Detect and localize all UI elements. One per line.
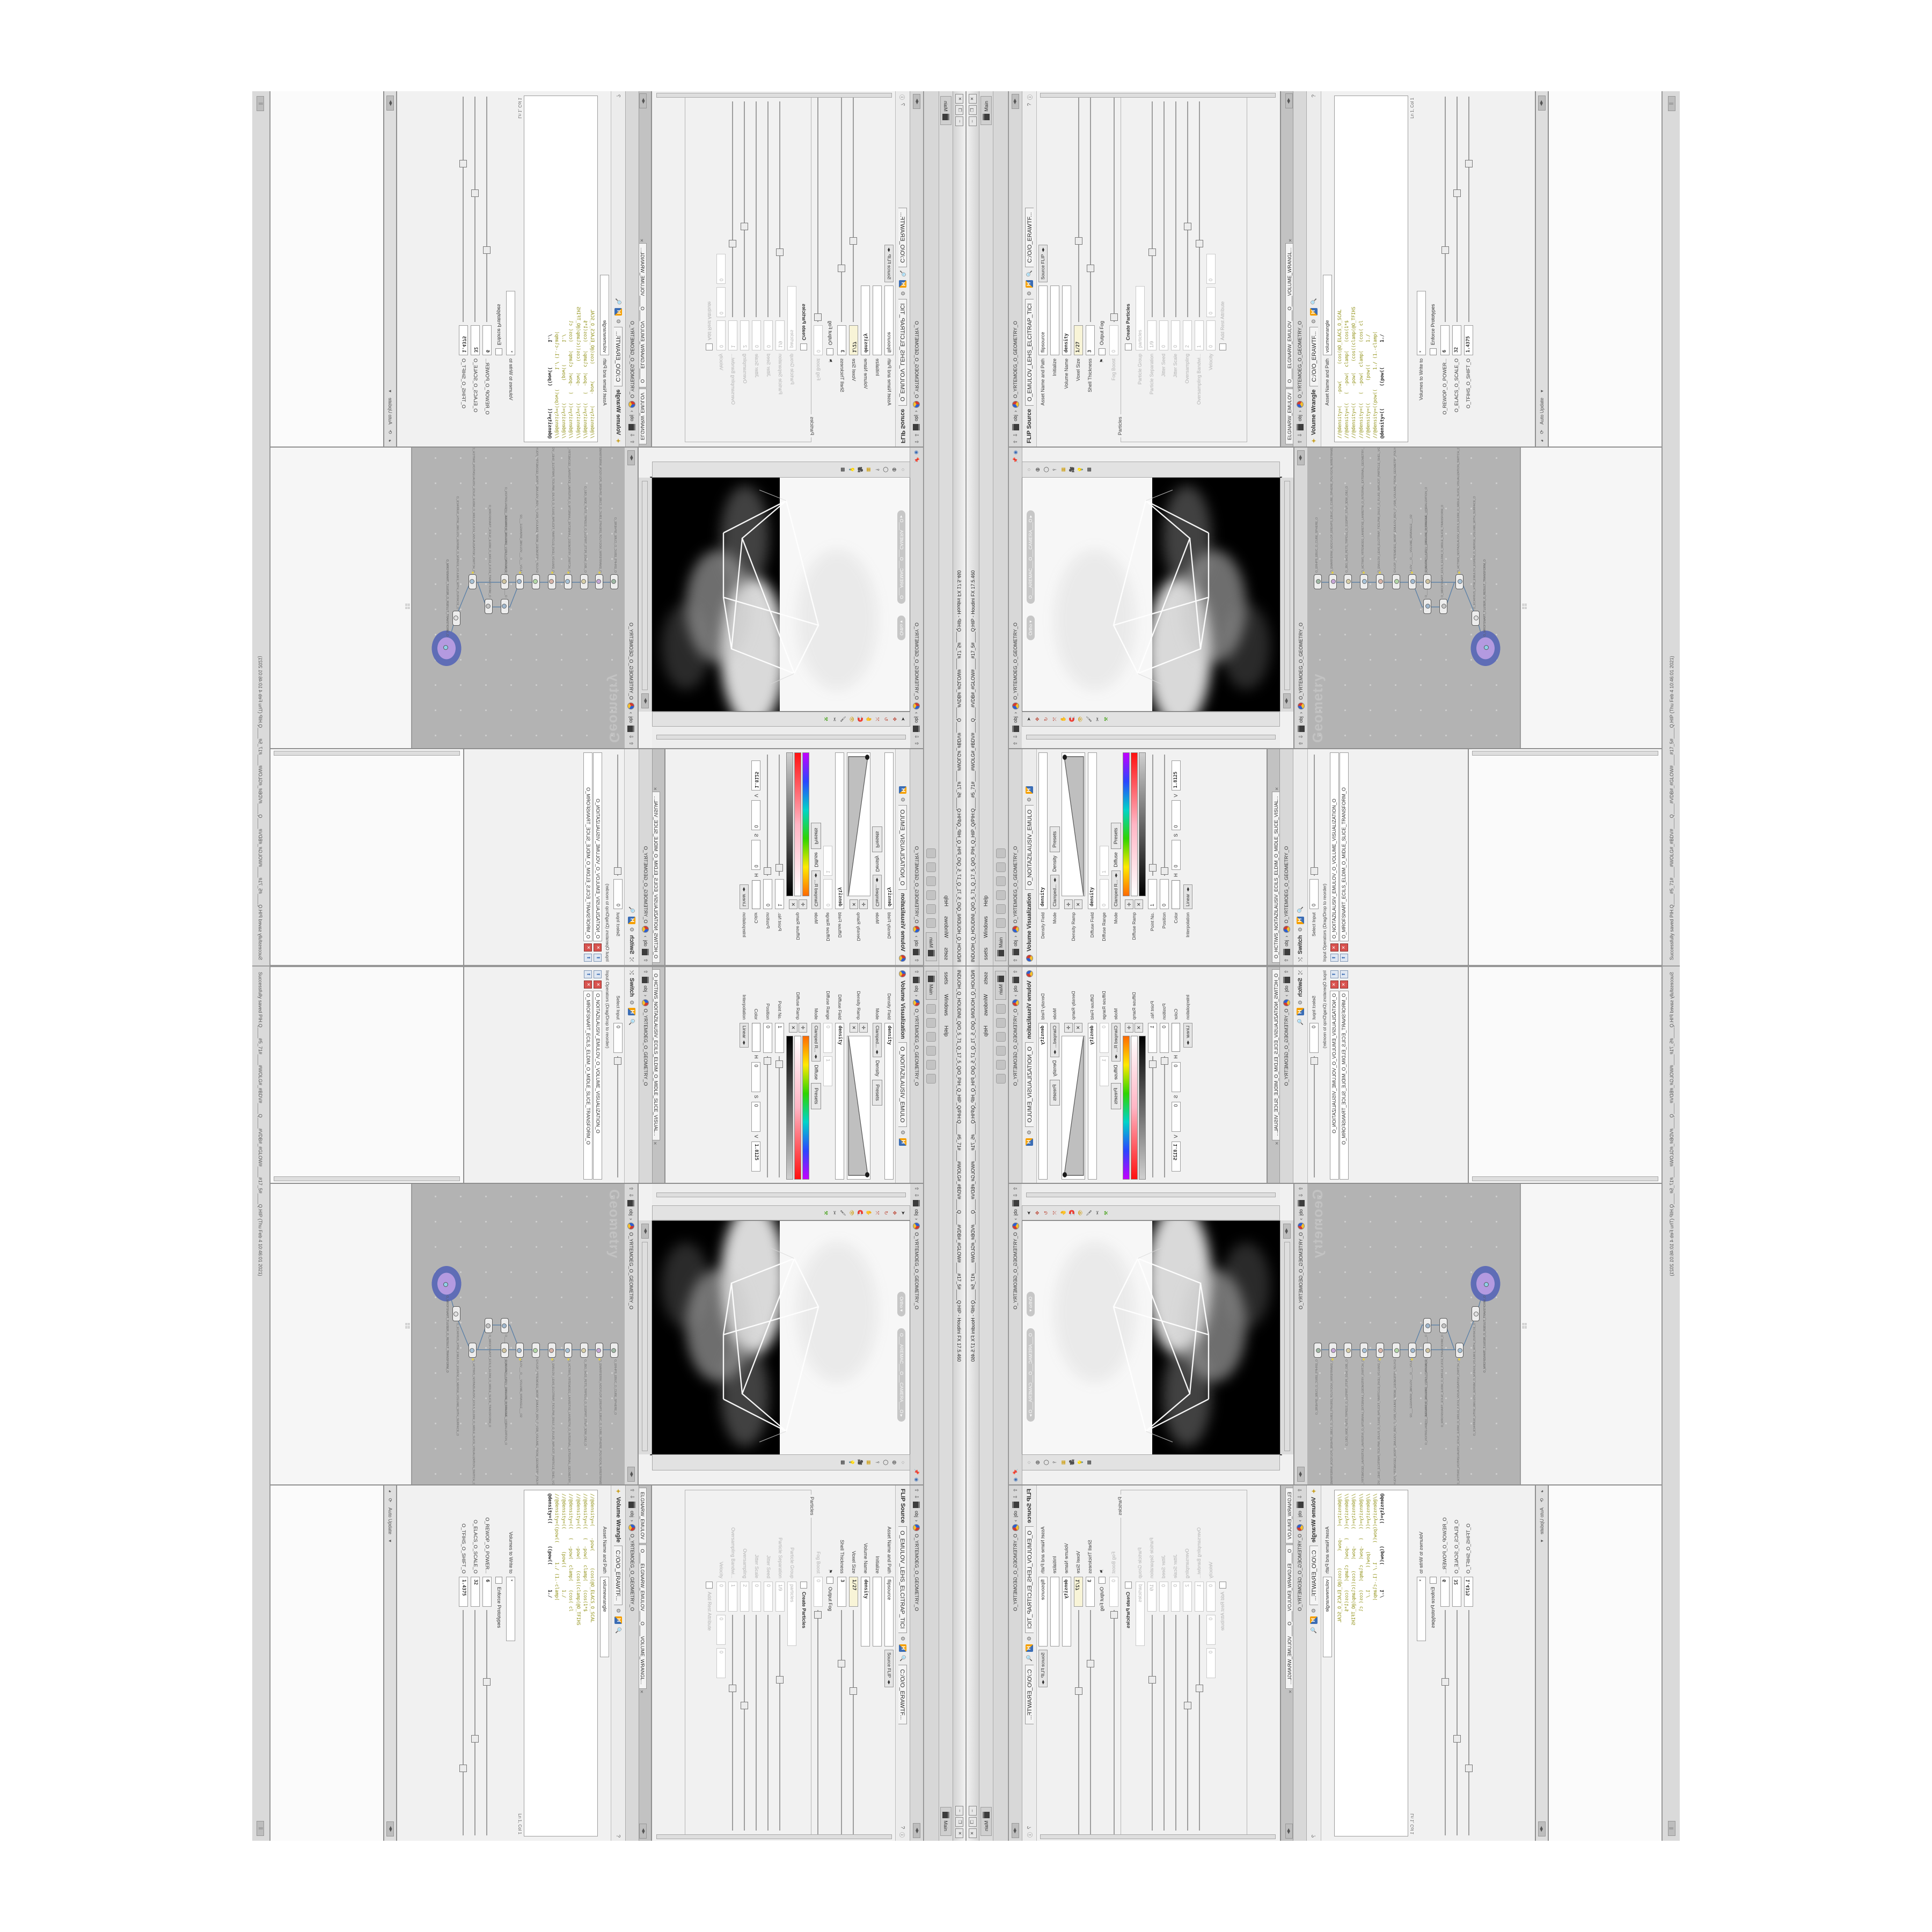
diffuse-presets-button[interactable]: Presets [811, 1083, 822, 1109]
pane-scroll-tab[interactable]: ◀▶ [1538, 1821, 1546, 1836]
menu-windows[interactable]: Windows [983, 916, 989, 938]
display-lights-icon[interactable]: 💡 [849, 1459, 854, 1465]
density-presets-button[interactable]: Presets [1050, 1080, 1060, 1106]
translate-tool-icon[interactable]: ✥ [892, 1211, 897, 1215]
scale-input[interactable]: 32 [1452, 1577, 1461, 1607]
shelf-tool-icon[interactable] [996, 1032, 1006, 1042]
display-shaded-icon[interactable]: ◍ [892, 1460, 897, 1465]
select-input-field[interactable]: 0 [1309, 1023, 1319, 1053]
velocity-x-input[interactable]: 0 [717, 1582, 726, 1612]
particle-group-input[interactable]: particles [788, 1582, 797, 1646]
remove-ramp-point-button[interactable]: ✕ [789, 1023, 797, 1033]
node-visualization-switch[interactable]: O_HCTIWS_NOITAZILAUSIV_ECILS_ELDIM_O_MID… [469, 1343, 477, 1358]
node-visualization-switch[interactable]: O_HCTIWS_NOITAZILAUSIV_ECILS_ELDIM_O_MID… [469, 574, 477, 589]
camera-selector-pill[interactable]: O___AREMAC___O___CAMERA___O ▸ [897, 510, 905, 604]
shell-thickness-slider[interactable] [838, 94, 846, 322]
scrollbar[interactable] [1040, 1834, 1276, 1839]
target-icon[interactable]: ◉ [914, 1477, 920, 1482]
color-preview-gradient[interactable] [1131, 1036, 1138, 1180]
jitter-scale-input[interactable]: 0 [1171, 1582, 1180, 1612]
scale-slider[interactable] [1452, 94, 1461, 322]
menu-assets[interactable]: ssets [943, 948, 949, 960]
value-ramp-gradient[interactable] [1139, 752, 1146, 896]
reorder-up-icon[interactable]: ⬆ [1330, 970, 1338, 978]
node-vdb-from-polygons[interactable]: GYLOP_YRTEMOEG_MORF_EMULOV_BDV_O_VDB_VOL… [1392, 1343, 1400, 1358]
node-file[interactable]: O_JBO_WD3_PETS_TRPD1S_O_S1DPRT_STEP_3DW_… [1344, 1343, 1352, 1358]
node-slice-transform[interactable]: O_MROFSNART_ECILS_ELDIM_O_MIDLE_SLICE_TR… [485, 1318, 493, 1333]
diffuse-range-max[interactable]: 1 [1100, 846, 1109, 876]
help-icon[interactable]: ? [1311, 1834, 1317, 1838]
scrollbar[interactable] [1472, 1176, 1658, 1181]
gear-icon[interactable]: ⚙ [1298, 1000, 1304, 1005]
density-presets-button[interactable]: Presets [873, 826, 883, 853]
node-result-transform-selected[interactable]: O_MROFSNART_TLUSER_O_RESULT_TRANSFORM_O [1480, 1274, 1491, 1294]
power-slider[interactable] [483, 94, 492, 322]
shelf-main-tab[interactable]: Main [995, 971, 1006, 1000]
add-rest-attribute-checkbox[interactable] [1219, 343, 1226, 350]
help-icon[interactable]: ? [1027, 1826, 1033, 1829]
display-wire-icon[interactable]: ◯ [1044, 467, 1049, 472]
breadcrumb[interactable]: ⇧⇩ obj› O_YRTEMOEG_O_GEOMETRY_O [1293, 91, 1307, 447]
add-rest-attribute-checkbox[interactable] [706, 1582, 713, 1589]
remove-input-icon[interactable]: ✕ [594, 980, 602, 989]
viewport-scrollbar[interactable] [656, 1192, 906, 1197]
jitter-seed-slider[interactable] [764, 99, 773, 317]
point-number-input[interactable]: 1 [1148, 879, 1157, 909]
gear-icon[interactable]: ⚙ [900, 1636, 906, 1641]
velocity-x-input[interactable]: 0 [1206, 1582, 1216, 1612]
pin-icon[interactable]: 📌 [914, 1469, 920, 1475]
interpolation-dropdown[interactable]: Linear◂▸ [1183, 884, 1192, 909]
velocity-y-input[interactable]: 0 [1206, 287, 1216, 317]
jitter-seed-slider[interactable] [764, 1615, 773, 1833]
input-operator-path[interactable]: O_MROFSNART_ECILS_ELDIM_O_MIDLE_SLICE_TR… [1340, 752, 1349, 941]
node-wireframe[interactable]: O_EMARFERIW_NOGYLOP_EREHPS_EBUC_O_CUBE_S… [595, 574, 603, 589]
interpolation-dropdown[interactable]: Linear◂▸ [740, 884, 749, 909]
display-volume-icon[interactable]: ▩ [1087, 1460, 1092, 1465]
target-icon[interactable]: ◉ [1013, 450, 1019, 455]
shelf-tool-icon[interactable] [927, 862, 936, 872]
ortho-view-pill[interactable]: Ortho ▾ [1027, 616, 1035, 640]
position-slider[interactable] [764, 752, 772, 876]
shelf-tool-icon[interactable] [927, 890, 936, 900]
gear-icon[interactable]: ⚙ [1027, 1130, 1033, 1135]
node-visualization-switch[interactable]: O_HCTIWS_NOITAZILAUSIV_ECILS_ELDIM_O_MID… [1455, 1343, 1463, 1358]
pane-scroll-tab[interactable]: ◀▶ [1283, 693, 1291, 708]
menu-windows[interactable]: Windows [943, 994, 949, 1016]
power-input[interactable]: 6 [1440, 1577, 1450, 1607]
node-cube-sphere[interactable]: O_ERHPS_EBUC_O_CUBE_SPHERE_O [1314, 574, 1322, 589]
remove-ramp-point-button[interactable]: ✕ [789, 899, 797, 909]
viewport-scrollbar[interactable] [1026, 1192, 1276, 1197]
oversampling-input[interactable]: 2 [1183, 1582, 1192, 1612]
pane-scroll-tab[interactable]: ◀▶ [1012, 1823, 1019, 1838]
scale-input[interactable]: 32 [471, 1577, 480, 1607]
rotate-tool-icon[interactable]: ↻ [883, 1211, 888, 1215]
desktop-main-tab[interactable]: Main [980, 1807, 992, 1836]
display-camera-icon[interactable]: 🎥 [858, 1459, 862, 1465]
view-tool-icon[interactable]: 👁 [849, 1210, 854, 1216]
reorder-up-icon[interactable]: ⬆ [584, 970, 592, 978]
diffuse-ramp-gradient[interactable] [1123, 752, 1130, 896]
select-input-field[interactable]: 0 [614, 1023, 623, 1053]
display-normals-icon[interactable]: ⫯ [875, 1461, 880, 1463]
node-merge[interactable]: O_ECAFRUS_HTIW_EMULOV_EGREM_O_MERGE_VOLU… [452, 611, 460, 626]
enforce-prototypes-checkbox[interactable] [496, 348, 503, 355]
particle-group-input[interactable]: particles [1136, 286, 1145, 350]
gear-icon[interactable]: ⚙ [1311, 1608, 1317, 1613]
particle-separation-slider[interactable] [776, 1615, 785, 1833]
select-input-slider[interactable] [614, 752, 623, 876]
help-icon[interactable]: ? [1311, 94, 1317, 98]
position-slider[interactable] [1160, 752, 1168, 876]
scrollbar[interactable] [656, 1834, 892, 1839]
menu-assets[interactable]: ssets [943, 972, 949, 984]
shell-thickness-input[interactable]: 3 [838, 325, 847, 355]
diffuse-ramp-widget[interactable] [787, 1036, 810, 1180]
fog-boost-input[interactable]: 0 [1109, 325, 1118, 355]
shift-input[interactable]: 1.4375 [459, 325, 469, 355]
target-icon[interactable]: ◉ [1013, 1477, 1019, 1482]
diffuse-presets-button[interactable]: Presets [1111, 823, 1121, 849]
viewport-canvas[interactable]: Ortho ▾ O___AREMAC___O___CAMERA___O ▸ [650, 477, 910, 712]
desktop-main-tab[interactable]: Main [940, 1807, 952, 1836]
shelf-main-tab[interactable]: Main [926, 971, 937, 1000]
pane-scroll-tab[interactable]: ◀▶ [386, 96, 394, 111]
node-merge[interactable]: O_ECAFRUS_HTIW_EMULOV_EGREM_O_MERGE_VOLU… [1472, 611, 1480, 626]
diffuse-field-input[interactable]: density [836, 1023, 845, 1180]
density-field-input[interactable]: density [1038, 1023, 1048, 1180]
ortho-view-pill[interactable]: Ortho ▾ [1027, 1292, 1035, 1316]
jitter-seed-input[interactable]: 0 [1159, 320, 1168, 350]
display-points-icon[interactable]: ◌ [901, 1461, 905, 1463]
density-ramp-widget[interactable] [847, 752, 870, 896]
search-icon[interactable]: 🔍 [1298, 906, 1304, 913]
node-flip-source[interactable]: O_EMULOV_LEHS_ELCITRAP_TICILPMI_DIULF_O_… [548, 574, 556, 589]
handles-tool-icon[interactable]: ✋ [866, 716, 871, 722]
add-ramp-point-button[interactable]: ✛ [859, 899, 868, 909]
select-input-field[interactable]: 0 [614, 879, 623, 909]
input-operator-path[interactable]: O_NOITAZILAUSIV_EMULOV_O_VOLUME_VISUALIZ… [594, 991, 603, 1180]
search-icon[interactable]: 🔍 [1311, 298, 1317, 305]
voxel-size-slider[interactable] [1074, 1610, 1082, 1838]
neighbor-tab[interactable]: ELGNARW_EMULOV [639, 1488, 647, 1543]
oversampling-input[interactable]: 2 [741, 1582, 750, 1612]
jitter-scale-slider[interactable] [752, 1615, 761, 1833]
diffuse-field-input[interactable]: density [1088, 1023, 1097, 1180]
breadcrumb[interactable]: ⇧⇩ obj› O_YRTEMOEG_O_GEOMETRY_O 📌 ◉ [1009, 448, 1022, 748]
diffuse-mode-dropdown[interactable]: Clamped R...◂▸ [1111, 870, 1121, 909]
maximize-button[interactable]: ❐ [955, 105, 963, 115]
diffuse-range-min[interactable]: 0 [1100, 1023, 1109, 1053]
info-icon[interactable]: ⓘ [899, 94, 907, 100]
volume-name-input[interactable]: density [1062, 286, 1071, 355]
input-operator-path[interactable]: O_NOITAZILAUSIV_EMULOV_O_VOLUME_VISUALIZ… [1330, 752, 1339, 941]
value-ramp-gradient[interactable] [787, 752, 794, 896]
shift-slider[interactable] [459, 1610, 468, 1838]
oversampling-input[interactable]: 2 [1183, 320, 1192, 350]
ortho-view-pill[interactable]: Ortho ▾ [897, 1292, 905, 1316]
reorder-up-icon[interactable]: ⬆ [1330, 954, 1338, 962]
gear-icon[interactable]: ⚙ [900, 797, 906, 802]
gear-icon[interactable]: ⚙ [900, 1130, 906, 1135]
source-flip-dropdown[interactable]: Source FLIP◂▸ [885, 1650, 894, 1687]
wrangle-asset-name-input[interactable]: volumewrangle [601, 1577, 610, 1657]
window-titlebar[interactable]: INDUOH_Q_HOUDINI_Q/O_5_71_Q_17_5_Q/O_PIH… [967, 967, 979, 1841]
display-wire-icon[interactable]: ◯ [883, 1460, 888, 1465]
voxel-size-input[interactable]: 1/27 [850, 1577, 859, 1607]
input-operator-item[interactable]: ⬆ ✕ O_MROFSNART_ECILS_ELDIM_O_MIDLE_SLIC… [583, 967, 593, 1183]
auto-update-selector[interactable]: Auto Update [387, 1507, 393, 1534]
node-name-tab[interactable]: O_NOITAZILAUSIV_EMULO [1025, 1042, 1034, 1127]
view-tool-icon[interactable]: 👁 [1078, 716, 1083, 722]
help-icon[interactable]: ? [616, 1834, 621, 1838]
window-titlebar[interactable]: INDUOH_Q_HOUDINI_Q/O_5_71_Q_17_5_Q/O_PIH… [953, 967, 965, 1841]
translate-tool-icon[interactable]: ✥ [892, 717, 897, 721]
neighbor-tab[interactable]: ELGNARW_EMULOV [639, 389, 647, 444]
help-icon[interactable]: ? [900, 103, 906, 106]
density-mode-dropdown[interactable]: Clamped...◂▸ [873, 875, 882, 909]
breadcrumb[interactable]: ⇧ obj› O_YRTEMOEG_O_GEOMETRY_O [639, 749, 652, 965]
particle-separation-input[interactable]: 1/9 [776, 1582, 785, 1612]
velocity-x-input[interactable]: 0 [1206, 320, 1216, 350]
input-operator-item[interactable]: ⬆ ✕ O_NOITAZILAUSIV_EMULOV_O_VOLUME_VISU… [1329, 967, 1339, 1183]
shelf-tool-icon[interactable] [927, 1046, 936, 1056]
diffuse-ramp-gradient[interactable] [803, 752, 810, 896]
position-input[interactable]: 0 [764, 1023, 773, 1053]
add-ramp-point-button[interactable]: ✛ [1064, 1023, 1073, 1033]
color-swatch[interactable] [752, 880, 760, 909]
node-result-transform-selected[interactable]: O_MROFSNART_TLUSER_O_RESULT_TRANSFORM_O [441, 638, 452, 658]
enforce-prototypes-checkbox[interactable] [1430, 1577, 1437, 1584]
viewport-hscroll[interactable] [1284, 1242, 1290, 1451]
scale-input[interactable]: 32 [1452, 325, 1461, 355]
asset-name-input[interactable]: flipsource [1038, 1577, 1048, 1646]
shell-thickness-slider[interactable] [838, 1610, 846, 1838]
display-shaded-icon[interactable]: ◍ [892, 467, 897, 472]
handles-tool-icon[interactable]: ✋ [1061, 716, 1066, 722]
viewport-scrollbar[interactable] [1026, 735, 1276, 740]
file-path-tab[interactable]: C:/O/O_ERAWTF... [1309, 1546, 1318, 1605]
select-tool-icon[interactable]: ➤ [901, 717, 905, 721]
reorder-up-icon[interactable]: ⬆ [1340, 954, 1348, 962]
node-cube-sphere[interactable]: O_ERHPS_EBUC_O_CUBE_SPHERE_O [610, 1343, 618, 1358]
color-swatch[interactable] [752, 1023, 760, 1052]
sat-input[interactable]: 0 [1172, 800, 1181, 830]
reorder-up-icon[interactable]: ⬆ [1340, 970, 1348, 978]
power-slider[interactable] [1440, 1610, 1449, 1838]
network-canvas[interactable]: Geometry O_ERHPS_EBUC_O_CUBE_SPHERE_O O_… [412, 447, 625, 748]
gear-icon[interactable]: ⚙ [1027, 797, 1033, 802]
volume-name-input[interactable]: density [861, 1577, 870, 1646]
pane-scroll-tab[interactable]: ◀▶ [1297, 450, 1305, 465]
particle-separation-input[interactable]: 1/9 [1147, 1582, 1157, 1612]
breadcrumb[interactable]: ⇧⇩ obj› O_YRTEMOEG_O_GEOMETRY_O ◀▶ [910, 91, 923, 447]
jitter-scale-input[interactable]: 0 [752, 320, 762, 350]
pane-scroll-tab[interactable]: ◀▶ [913, 94, 920, 109]
diffuse-ramp-gradient[interactable] [1123, 1036, 1130, 1180]
close-button[interactable]: ✕ [969, 94, 977, 104]
snap-magnet-icon[interactable]: 🧲 [1070, 1210, 1074, 1216]
display-points-icon[interactable]: ◌ [1027, 468, 1031, 471]
shelf-tool-icon[interactable] [996, 876, 1006, 886]
scale-slider[interactable] [1452, 1610, 1461, 1838]
breadcrumb[interactable]: ⇧ obj› O_YRTEMOEG_O_GEOMETRY_O [1280, 967, 1293, 1183]
create-particles-checkbox[interactable] [1125, 1582, 1132, 1589]
reorder-up-icon[interactable]: ⬆ [584, 954, 592, 962]
menu-assets[interactable]: ssets [983, 972, 989, 984]
neighbor-tab[interactable]: ELGNARW_EMULOV [1285, 389, 1293, 444]
input-operator-item[interactable]: ⬆ ✕ O_NOITAZILAUSIV_EMULOV_O_VOLUME_VISU… [1329, 749, 1339, 965]
shelf-tool-icon[interactable] [996, 904, 1006, 914]
scale-tool-icon[interactable]: ⤧ [1052, 1211, 1057, 1214]
fog-boost-input[interactable]: 0 [814, 1577, 823, 1607]
breadcrumb[interactable]: ⇧ obj› O_YRTEMOEG_O_GEOMETRY_O [910, 749, 923, 965]
initialize-input[interactable] [873, 286, 882, 355]
jitter-scale-input[interactable]: 0 [752, 1582, 762, 1612]
display-volume-icon[interactable]: ▩ [840, 1460, 845, 1465]
remove-input-icon[interactable]: ✕ [1340, 943, 1348, 952]
node-name-tab[interactable]: O_EMULOV_LEHS_ELCITRAP_TICI [1025, 1526, 1034, 1633]
network-canvas[interactable]: Geometry O_ERHPS_EBUC_O_CUBE_SPHERE_O O_… [1307, 447, 1520, 748]
shelf-tool-icon[interactable] [996, 862, 1006, 872]
node-name-tab[interactable]: O_EMULOV_LEHS_ELCITRAP_TICI [1025, 299, 1034, 406]
node-vdb-from-polygons[interactable]: GYLOP_YRTEMOEG_MORF_EMULOV_BDV_O_VDB_VOL… [532, 574, 540, 589]
initialize-input[interactable] [1050, 1577, 1059, 1646]
axis-tool-icon[interactable]: ⚒ [823, 1211, 828, 1215]
gear-icon[interactable]: ⚙ [900, 291, 906, 296]
breadcrumb[interactable]: ⇧⇩ obj› O_YRTEMOEG_O_GEOMETRY_O 📌 ◉ [910, 1184, 923, 1484]
shelf-tool-icon[interactable] [927, 904, 936, 914]
diffuse-range-min[interactable]: 0 [824, 1023, 833, 1053]
breadcrumb[interactable]: ⇧⇩ obj› O_YRTEMOEG_O_GEOMETRY_O ◀▶ [624, 448, 638, 748]
remove-input-icon[interactable]: ✕ [1330, 943, 1338, 952]
density-field-input[interactable]: density [885, 1023, 894, 1180]
input-operator-item[interactable]: ⬆ ✕ O_MROFSNART_ECILS_ELDIM_O_MIDLE_SLIC… [1339, 967, 1349, 1183]
shelf-tool-icon[interactable] [996, 1074, 1006, 1084]
brush-tool-icon[interactable]: 🖌 [1087, 1210, 1092, 1216]
node-volume-wrangle[interactable]: O____ELGNARW_EMULOV____O____VOLUME_WRANG… [501, 599, 509, 614]
value-input[interactable]: 1.8125 [752, 760, 761, 791]
node-wireframe[interactable]: O_EMARFERIW_NOGYLOP_EREHPS_EBUC_O_CUBE_S… [595, 1343, 603, 1358]
point-slider[interactable] [1148, 1056, 1157, 1180]
shift-input[interactable]: 1.4375 [1464, 325, 1473, 355]
scale-tool-icon[interactable]: ⤧ [1052, 717, 1057, 721]
auto-update-selector[interactable]: Auto Update [387, 398, 393, 425]
node-flip-source[interactable]: O_EMULOV_LEHS_ELCITRAP_TICILPMI_DIULF_O_… [1376, 574, 1384, 589]
density-field-input[interactable]: density [1038, 752, 1048, 909]
shelf-tool-icon[interactable] [927, 1004, 936, 1014]
jitter-scale-input[interactable]: 0 [1171, 320, 1180, 350]
point-number-input[interactable]: 1 [775, 1023, 785, 1053]
output-fog-checkbox[interactable] [1099, 1577, 1106, 1584]
add-ramp-point-button[interactable]: ✛ [1125, 1023, 1133, 1033]
node-name-tab[interactable]: O_EMULOV_LEHS_ELCITRAP_TICI [898, 1526, 907, 1633]
shelf-main-tab[interactable]: Main [995, 932, 1006, 961]
refresh-icon[interactable]: ⟳ [1539, 430, 1545, 434]
add-ramp-point-button[interactable]: ✛ [799, 899, 807, 909]
hue-input[interactable]: 0 [752, 840, 761, 870]
scrollbar[interactable] [274, 1176, 460, 1181]
diffuse-ramp-widget[interactable] [787, 752, 810, 896]
gear-icon[interactable]: ⚙ [629, 927, 635, 932]
pane-grip-icon[interactable]: ⣿⣿ [405, 603, 410, 610]
menu-help[interactable]: Help [943, 896, 949, 907]
search-icon[interactable]: 🔍 [900, 1655, 906, 1662]
breadcrumb[interactable]: ⇧⇩ obj› O_YRTEMOEG_O_GEOMETRY_O ◀▶ [1009, 1485, 1022, 1841]
help-icon[interactable]: ? [900, 1826, 906, 1829]
shelf-tool-icon[interactable] [996, 1004, 1006, 1014]
velocity-z-input[interactable]: 0 [1206, 1648, 1216, 1678]
diffuse-ramp-widget[interactable] [1123, 1036, 1146, 1180]
source-flip-dropdown[interactable]: Source FLIP◂▸ [1038, 245, 1048, 282]
point-number-input[interactable]: 1 [775, 879, 785, 909]
node-cube-sphere[interactable]: O_ERHPS_EBUC_O_CUBE_SPHERE_O [610, 574, 618, 589]
close-button[interactable]: ✕ [955, 94, 963, 104]
pane-scroll-tab[interactable]: ◀▶ [1285, 93, 1293, 108]
node-flip-source[interactable]: O_EMULOV_LEHS_ELCITRAP_TICILPMI_DIULF_O_… [1376, 1343, 1384, 1358]
hue-input[interactable]: 0 [1172, 1062, 1181, 1092]
input-operator-path[interactable]: O_MROFSNART_ECILS_ELDIM_O_MIDLE_SLICE_TR… [1340, 991, 1349, 1180]
asset-name-input[interactable]: flipsource [885, 286, 894, 355]
display-normals-icon[interactable]: ⫯ [1052, 1461, 1057, 1463]
fog-boost-input[interactable]: 0 [1109, 1577, 1118, 1607]
scale-slider[interactable] [471, 1610, 480, 1838]
neighbor-tab[interactable]: ELGNARW_EMULOV [1285, 1488, 1293, 1543]
node-file[interactable]: O_JBO_WD3_PETS_TRPD1S_O_S1DPRT_STEP_3DW_… [1344, 574, 1352, 589]
density-mode-dropdown[interactable]: Clamped...◂▸ [1050, 1023, 1059, 1057]
oversampling-bandwidth-input[interactable]: 1 [1195, 1582, 1204, 1612]
density-ramp-widget[interactable] [1062, 1036, 1085, 1180]
diffuse-field-input[interactable]: density [1088, 752, 1097, 909]
velocity-y-input[interactable]: 0 [717, 287, 726, 317]
node-volume-visualization[interactable]: O_NOITAZILAUSIV_EMULOV_O_VOLUME_VISUALIZ… [1423, 1343, 1431, 1358]
wrangle-pane-tab[interactable]: O____ELGNARW_EMULOV____O____VOLUME_WRANG… [1285, 243, 1293, 387]
output-fog-checkbox[interactable] [1099, 348, 1106, 355]
axis-tool-icon[interactable]: ⚒ [1104, 1211, 1109, 1215]
diffuse-range-max[interactable]: 1 [824, 846, 833, 876]
display-volume-icon[interactable]: ▩ [840, 467, 845, 472]
node-volume-wrangle[interactable]: O____ELGNARW_EMULOV____O____VOLUME_WRANG… [501, 1318, 509, 1333]
jitter-scale-slider[interactable] [1171, 99, 1180, 317]
add-ramp-point-button[interactable]: ✛ [1064, 899, 1073, 909]
scissors-tool-icon[interactable]: ✂ [832, 717, 837, 721]
create-particles-checkbox[interactable] [1125, 343, 1132, 350]
brush-tool-icon[interactable]: 🖌 [1087, 716, 1092, 722]
oversampling-bandwidth-slider[interactable] [1195, 1615, 1203, 1833]
scrollbar[interactable] [656, 93, 892, 98]
pin-icon[interactable]: 📌 [1013, 457, 1019, 463]
scale-tool-icon[interactable]: ⤧ [875, 717, 880, 721]
diffuse-mode-dropdown[interactable]: Clamped R...◂▸ [812, 870, 821, 909]
shift-input[interactable]: 1.4375 [1464, 1577, 1473, 1607]
search-icon[interactable]: 🔍 [900, 270, 906, 277]
input-operator-path[interactable]: O_NOITAZILAUSIV_EMULOV_O_VOLUME_VISUALIZ… [594, 752, 603, 941]
oversampling-slider[interactable] [741, 99, 749, 317]
breadcrumb[interactable]: ⇧⇩ obj› O_YRTEMOEG_O_GEOMETRY_O [1293, 1485, 1307, 1841]
initialize-input[interactable] [873, 1577, 882, 1646]
node-geometry-switch[interactable]: O_HCTIWS_YRTEMOEG_LANRETXE_LANRETNI_O_IN… [1360, 574, 1368, 589]
search-icon[interactable]: 🔍 [1027, 270, 1033, 277]
initialize-input[interactable] [1050, 286, 1059, 355]
velocity-z-input[interactable]: 0 [717, 254, 726, 284]
gear-icon[interactable]: ⚙ [629, 1000, 635, 1005]
shell-thickness-slider[interactable] [1086, 1610, 1094, 1838]
brush-tool-icon[interactable]: 🖌 [840, 716, 845, 722]
power-slider[interactable] [1440, 94, 1449, 322]
oversampling-bandwidth-slider[interactable] [729, 99, 737, 317]
diffuse-range-min[interactable]: 0 [824, 879, 833, 909]
